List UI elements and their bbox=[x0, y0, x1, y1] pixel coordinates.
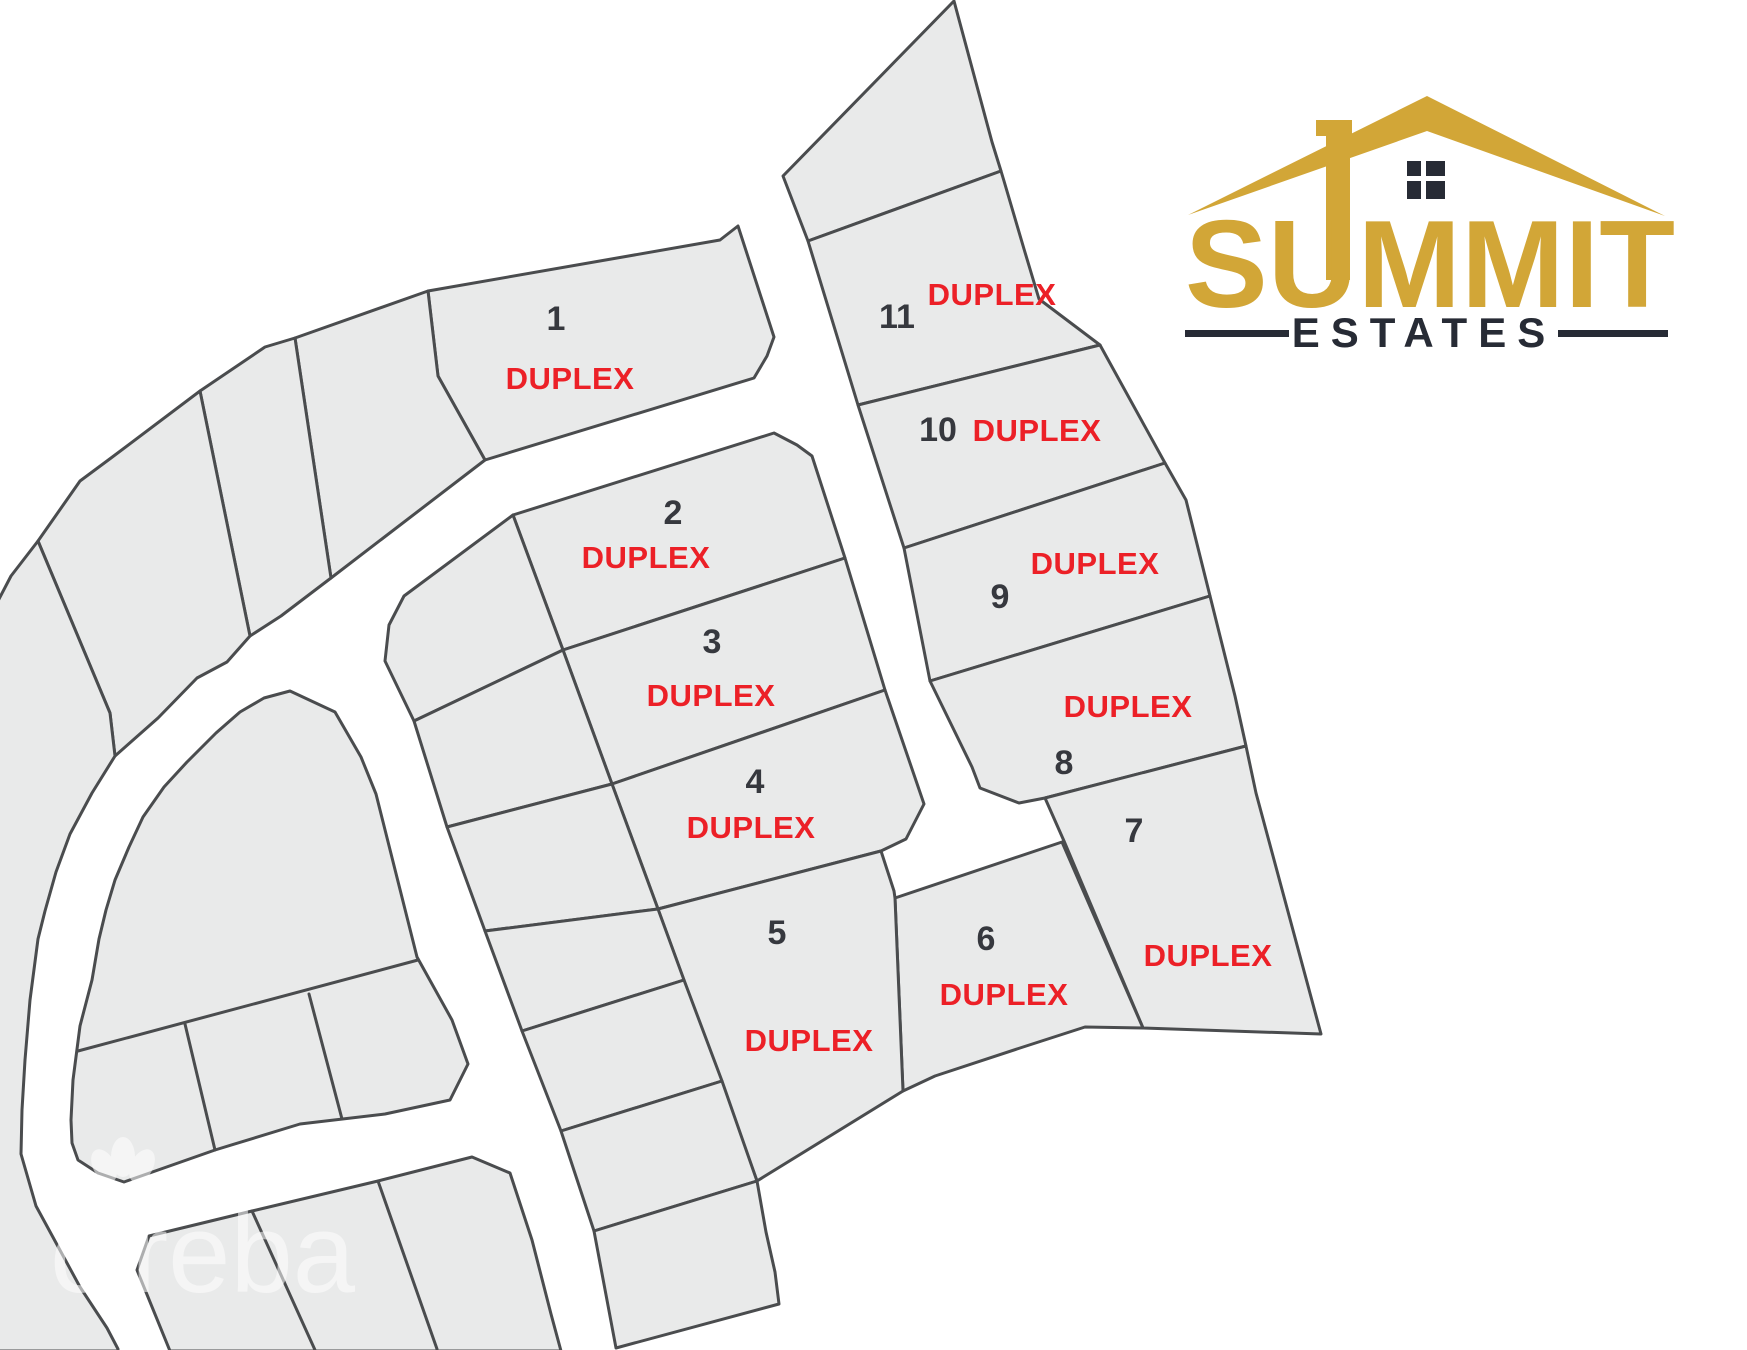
svg-text:10: 10 bbox=[919, 411, 957, 449]
svg-text:DUPLEX: DUPLEX bbox=[506, 361, 635, 396]
svg-text:DUPLEX: DUPLEX bbox=[582, 540, 711, 575]
svg-text:DUPLEX: DUPLEX bbox=[973, 413, 1102, 448]
svg-text:6: 6 bbox=[977, 920, 996, 958]
svg-text:11: 11 bbox=[879, 298, 915, 336]
svg-text:DUPLEX: DUPLEX bbox=[1031, 546, 1160, 581]
svg-text:DUPLEX: DUPLEX bbox=[928, 277, 1057, 312]
svg-text:2: 2 bbox=[664, 494, 683, 532]
svg-text:DUPLEX: DUPLEX bbox=[940, 977, 1069, 1012]
svg-text:DUPLEX: DUPLEX bbox=[1144, 938, 1273, 973]
svg-text:7: 7 bbox=[1125, 812, 1144, 850]
svg-text:8: 8 bbox=[1055, 744, 1074, 782]
svg-text:9: 9 bbox=[991, 578, 1010, 616]
svg-text:DUPLEX: DUPLEX bbox=[647, 678, 776, 713]
svg-text:ESTATES: ESTATES bbox=[1292, 309, 1556, 356]
svg-text:cireba: cireba bbox=[50, 1191, 356, 1316]
svg-text:3: 3 bbox=[703, 623, 722, 661]
svg-text:4: 4 bbox=[746, 763, 765, 801]
svg-text:DUPLEX: DUPLEX bbox=[1064, 689, 1193, 724]
svg-text:5: 5 bbox=[768, 914, 787, 952]
svg-text:1: 1 bbox=[547, 300, 566, 338]
svg-text:DUPLEX: DUPLEX bbox=[687, 810, 816, 845]
svg-text:DUPLEX: DUPLEX bbox=[745, 1023, 874, 1058]
